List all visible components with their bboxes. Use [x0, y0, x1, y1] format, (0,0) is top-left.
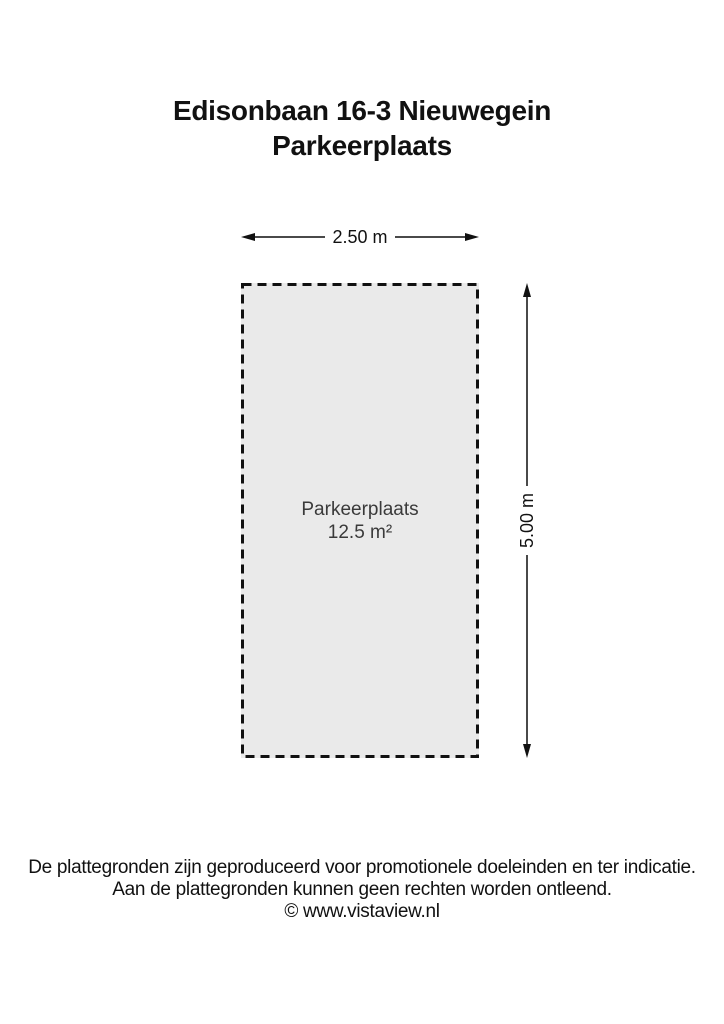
page-title: Edisonbaan 16-3 Nieuwegein Parkeerplaats: [0, 93, 724, 163]
footer-disclaimer: De plattegronden zijn geproduceerd voor …: [0, 857, 724, 923]
arrowhead-right-icon: [465, 233, 479, 241]
title-address: Edisonbaan 16-3 Nieuwegein: [0, 93, 724, 128]
width-dimension: 2.50 m: [241, 226, 479, 248]
height-dimension-label: 5.00 m: [517, 486, 538, 555]
parking-space-outline: Parkeerplaats 12.5 m²: [241, 283, 479, 758]
dimension-line: [526, 297, 528, 486]
dimension-line: [255, 236, 325, 238]
arrowhead-up-icon: [523, 283, 531, 297]
title-subtitle: Parkeerplaats: [0, 128, 724, 163]
copyright-line: © www.vistaview.nl: [0, 901, 724, 923]
arrowhead-down-icon: [523, 744, 531, 758]
dimension-line: [526, 555, 528, 744]
floorplan-page: Edisonbaan 16-3 Nieuwegein Parkeerplaats…: [0, 0, 724, 1024]
room-label: Parkeerplaats 12.5 m²: [301, 498, 418, 544]
room-name-label: Parkeerplaats: [301, 498, 418, 521]
room-area-label: 12.5 m²: [301, 521, 418, 544]
dimension-line: [395, 236, 465, 238]
width-dimension-label: 2.50 m: [325, 226, 394, 248]
height-dimension: 5.00 m: [520, 283, 534, 758]
disclaimer-line-2: Aan de plattegronden kunnen geen rechten…: [0, 879, 724, 901]
arrowhead-left-icon: [241, 233, 255, 241]
disclaimer-line-1: De plattegronden zijn geproduceerd voor …: [0, 857, 724, 879]
